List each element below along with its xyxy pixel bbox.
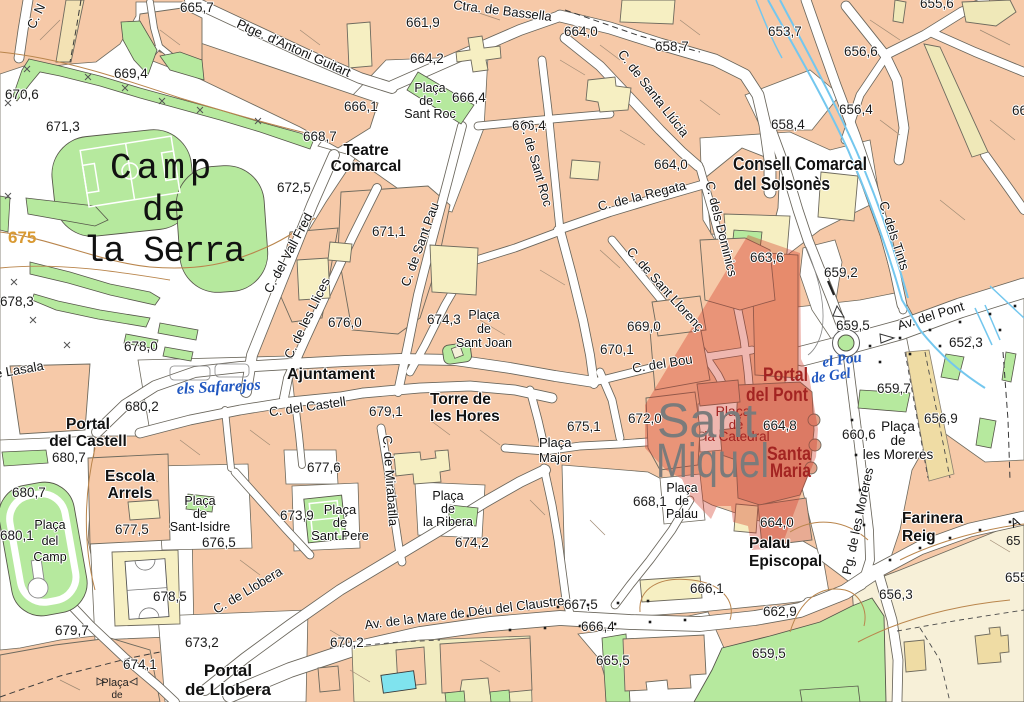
svg-text:Plaça: Plaça <box>414 81 445 95</box>
svg-text:del: del <box>42 534 59 548</box>
svg-text:675: 675 <box>8 228 36 247</box>
svg-text:673,9: 673,9 <box>280 508 314 523</box>
svg-text:Portal: Portal <box>763 365 808 386</box>
svg-text:664,0: 664,0 <box>564 24 598 39</box>
svg-text:Palau: Palau <box>666 507 698 521</box>
svg-text:Sant-Isidre: Sant-Isidre <box>170 520 230 534</box>
svg-text:665,7: 665,7 <box>180 0 214 15</box>
svg-text:680,1: 680,1 <box>0 528 34 543</box>
svg-text:Sant Roc: Sant Roc <box>404 107 455 121</box>
svg-text:de: de <box>890 433 905 448</box>
svg-text:669,4: 669,4 <box>114 66 148 81</box>
svg-text:665,5: 665,5 <box>596 653 630 668</box>
svg-text:666,1: 666,1 <box>690 581 724 596</box>
svg-text:de: de <box>477 322 491 336</box>
svg-text:669,0: 669,0 <box>627 319 661 334</box>
svg-text:la Serra: la Serra <box>83 231 245 272</box>
svg-text:65: 65 <box>1006 533 1020 548</box>
svg-text:les Moreres: les Moreres <box>863 447 934 462</box>
svg-text:Escola: Escola <box>105 468 155 485</box>
svg-text:672,5: 672,5 <box>277 180 311 195</box>
svg-text:Teatre: Teatre <box>343 142 389 159</box>
svg-text:de -: de - <box>419 94 441 108</box>
svg-text:Camp: Camp <box>33 550 66 564</box>
svg-text:680,2: 680,2 <box>125 399 159 414</box>
svg-text:66: 66 <box>1012 103 1024 118</box>
svg-text:658,7: 658,7 <box>655 39 689 54</box>
svg-text:653,7: 653,7 <box>768 24 802 39</box>
svg-text:678,3: 678,3 <box>0 294 34 309</box>
svg-text:656,6: 656,6 <box>844 44 878 59</box>
svg-text:674,3: 674,3 <box>427 312 461 327</box>
svg-text:Miquel: Miquel <box>656 435 769 488</box>
svg-text:Palau: Palau <box>749 535 790 552</box>
svg-text:676,5: 676,5 <box>202 535 236 550</box>
svg-text:655: 655 <box>1005 570 1024 585</box>
svg-text:678,0: 678,0 <box>124 339 158 354</box>
svg-text:de: de <box>675 494 689 508</box>
svg-text:del Castell: del Castell <box>49 433 127 450</box>
svg-text:668,7: 668,7 <box>303 129 337 144</box>
svg-text:680,7: 680,7 <box>52 450 86 465</box>
svg-text:668,1: 668,1 <box>633 494 667 509</box>
svg-text:656,9: 656,9 <box>924 411 958 426</box>
svg-text:670,1: 670,1 <box>600 342 634 357</box>
svg-text:Plaça: Plaça <box>184 494 215 508</box>
svg-text:666,4: 666,4 <box>452 90 486 105</box>
svg-text:Maria: Maria <box>770 461 811 482</box>
svg-text:656,4: 656,4 <box>839 102 873 117</box>
svg-text:Camp: Camp <box>110 148 216 189</box>
svg-text:652,3: 652,3 <box>949 335 983 350</box>
svg-text:673,2: 673,2 <box>185 635 219 650</box>
svg-text:664,0: 664,0 <box>654 157 688 172</box>
svg-text:671,1: 671,1 <box>372 224 406 239</box>
svg-text:655,6: 655,6 <box>920 0 954 11</box>
svg-text:659,7: 659,7 <box>877 381 911 396</box>
svg-text:666,4: 666,4 <box>581 619 615 634</box>
svg-text:Consell Comarcal: Consell Comarcal <box>733 154 867 174</box>
svg-text:de: de <box>441 502 455 516</box>
svg-text:Arrels: Arrels <box>108 485 153 502</box>
svg-text:Episcopal: Episcopal <box>749 553 822 570</box>
svg-text:659,2: 659,2 <box>824 265 858 280</box>
svg-text:de: de <box>193 507 207 521</box>
svg-text:674,2: 674,2 <box>455 535 489 550</box>
svg-text:del Solsonès: del Solsonès <box>734 174 830 194</box>
svg-text:Portal: Portal <box>66 416 110 433</box>
svg-text:677,5: 677,5 <box>115 522 149 537</box>
svg-text:664,0: 664,0 <box>760 515 794 530</box>
svg-text:659,5: 659,5 <box>752 646 786 661</box>
svg-text:Plaça: Plaça <box>468 308 499 322</box>
svg-text:Plaça: Plaça <box>881 419 915 434</box>
svg-text:Torre de: Torre de <box>430 391 491 408</box>
svg-text:la Ribera: la Ribera <box>423 515 473 529</box>
svg-text:de: de <box>111 690 123 701</box>
svg-text:de: de <box>142 190 185 231</box>
svg-text:663,6: 663,6 <box>750 250 784 265</box>
svg-text:660,6: 660,6 <box>842 427 876 442</box>
svg-text:Sant Pere: Sant Pere <box>311 528 369 543</box>
svg-text:671,3: 671,3 <box>46 119 80 134</box>
svg-text:Sant Joan: Sant Joan <box>456 336 512 350</box>
svg-text:680,7: 680,7 <box>12 485 46 500</box>
svg-text:658,4: 658,4 <box>771 117 805 132</box>
svg-text:Plaça: Plaça <box>34 518 65 532</box>
svg-text:670,2: 670,2 <box>330 635 364 650</box>
svg-text:667,5: 667,5 <box>564 597 598 612</box>
svg-text:679,1: 679,1 <box>369 404 403 419</box>
svg-text:678,5: 678,5 <box>153 589 187 604</box>
svg-text:Portal: Portal <box>204 661 252 680</box>
svg-text:674,1: 674,1 <box>123 657 157 672</box>
svg-text:662,9: 662,9 <box>763 604 797 619</box>
svg-text:670,6: 670,6 <box>5 87 39 102</box>
svg-text:664,2: 664,2 <box>410 51 444 66</box>
svg-text:Comarcal: Comarcal <box>331 158 402 175</box>
svg-text:Farinera: Farinera <box>902 510 964 527</box>
svg-text:675,1: 675,1 <box>567 419 601 434</box>
svg-text:Plaça: Plaça <box>539 435 572 450</box>
svg-text:Plaça: Plaça <box>101 677 129 689</box>
svg-text:676,0: 676,0 <box>328 315 362 330</box>
svg-text:661,9: 661,9 <box>406 15 440 30</box>
svg-text:les Hores: les Hores <box>430 408 500 425</box>
svg-text:656,3: 656,3 <box>879 587 913 602</box>
svg-text:Reig: Reig <box>902 528 936 545</box>
svg-text:679,7: 679,7 <box>55 623 89 638</box>
svg-text:Ajuntament: Ajuntament <box>287 366 376 383</box>
svg-text:Major: Major <box>539 450 572 465</box>
svg-text:659,5: 659,5 <box>836 318 870 333</box>
svg-text:677,6: 677,6 <box>307 460 341 475</box>
svg-text:de Llobera: de Llobera <box>185 680 272 699</box>
svg-text:666,1: 666,1 <box>344 99 378 114</box>
svg-text:Plaça: Plaça <box>432 489 463 503</box>
